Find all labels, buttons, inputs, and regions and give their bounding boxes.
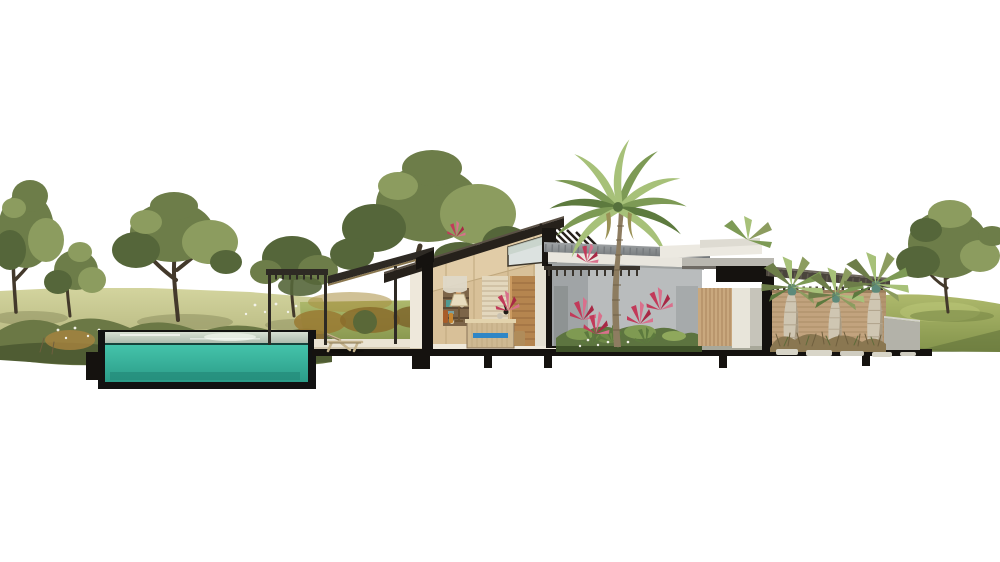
accent-drawer xyxy=(473,333,508,338)
stool xyxy=(514,331,525,346)
pergola-post xyxy=(268,275,271,345)
bottle xyxy=(443,310,448,323)
pergola-post xyxy=(324,275,327,345)
architectural-section-rendering xyxy=(0,0,1000,562)
cut-post-left xyxy=(422,262,433,350)
white-door-panel xyxy=(732,288,750,348)
concrete-retaining-wall xyxy=(884,316,920,350)
scene-canvas xyxy=(0,0,1000,562)
swimming-pool-section xyxy=(86,330,316,389)
curtain xyxy=(443,276,467,293)
slat-wall xyxy=(698,288,732,346)
foundation-piers xyxy=(484,356,870,368)
pool-step xyxy=(86,352,102,380)
foundation-block xyxy=(412,349,430,369)
bottle xyxy=(449,313,453,323)
